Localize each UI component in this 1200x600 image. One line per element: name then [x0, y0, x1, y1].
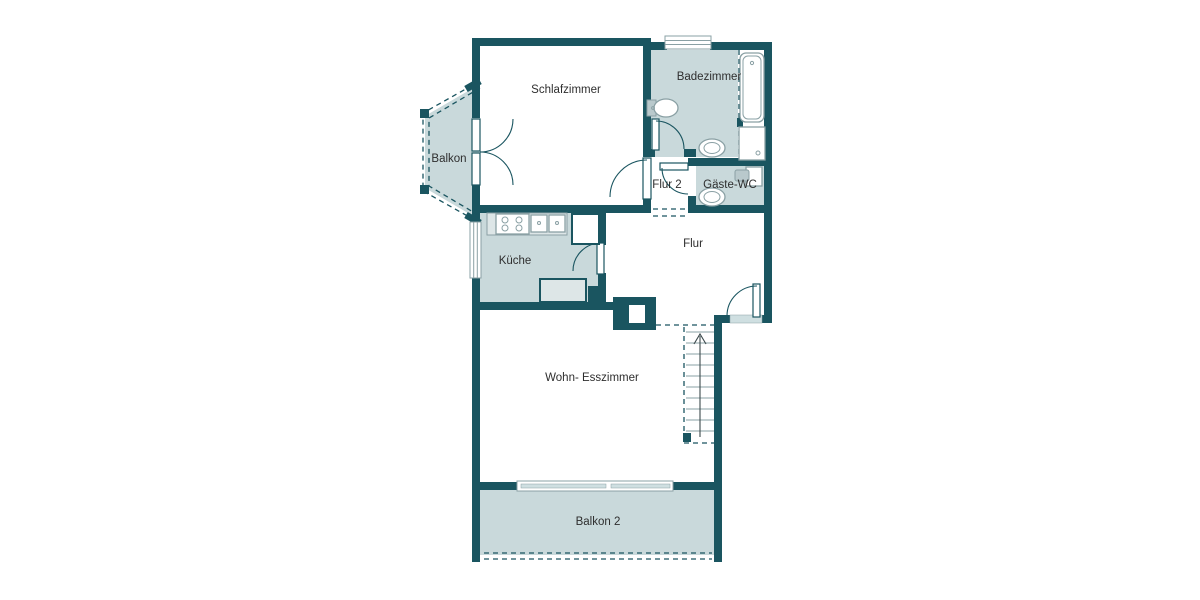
door-swing: [480, 152, 513, 185]
label-balkon: Balkon: [431, 153, 466, 165]
door-leaf: [472, 119, 480, 151]
shower: [739, 127, 765, 160]
wall-kueche-bottom: [472, 302, 613, 310]
floor-plan-drawing: Schlafzimmer Balkon Badezimmer Flur 2 Gä…: [0, 0, 1200, 600]
label-kueche: Küche: [499, 255, 532, 267]
staircase: [656, 325, 714, 443]
stair-newel: [683, 433, 691, 442]
label-balkon2: Balkon 2: [576, 516, 621, 528]
label-gaeste-wc: Gäste-WC: [703, 179, 757, 191]
door-leaf: [660, 163, 688, 170]
label-schlafzimmer: Schlafzimmer: [531, 84, 601, 96]
balkon-corner-bottom: [420, 185, 429, 194]
wall-bad-bottom-right: [684, 149, 696, 157]
door-leaf: [472, 153, 480, 185]
label-flur2: Flur 2: [652, 179, 681, 191]
door-swing: [610, 160, 647, 197]
wall-entrance-right: [762, 315, 772, 323]
chimney-flue: [629, 305, 645, 323]
door-leaf: [753, 284, 760, 317]
wall-left-lower: [472, 310, 480, 562]
schlafzimmer-door: [610, 158, 651, 199]
fridge: [572, 214, 599, 244]
wall-right-lower: [714, 315, 722, 562]
entrance-door: [727, 284, 762, 323]
wall-gwc-bottom: [688, 205, 772, 213]
kitchen-counter-low: [540, 279, 586, 302]
door-leaf: [643, 158, 651, 199]
door-leaf: [652, 119, 659, 150]
wall-mid-horizontal: [472, 205, 651, 213]
balkon-corner-top: [420, 109, 429, 118]
wall-right-upper: [764, 42, 772, 323]
flur2-opening: [653, 209, 686, 216]
door-swing: [480, 119, 513, 152]
badezimmer-window: [665, 36, 711, 49]
kueche-window: [470, 222, 481, 278]
door-leaf: [597, 243, 604, 274]
wall-top-bad-right: [710, 42, 772, 50]
stairs-direction-arrow: [694, 334, 706, 437]
label-wohn-esszimmer: Wohn- Esszimmer: [545, 372, 639, 384]
bathtub: [740, 53, 764, 122]
stove: [496, 214, 529, 234]
bath-sink: [647, 99, 678, 117]
floor-plan-page: Schlafzimmer Balkon Badezimmer Flur 2 Gä…: [0, 0, 1200, 600]
wohnzimmer-balkon-window: [517, 481, 673, 491]
wall-window-right: [673, 482, 722, 490]
wall-window-left: [472, 482, 517, 490]
label-badezimmer: Badezimmer: [677, 71, 742, 83]
wall-kueche-stub: [588, 286, 598, 302]
bath-toilet: [699, 139, 725, 157]
wall-left-upper: [472, 38, 480, 118]
wall-top-schlafzimmer: [472, 38, 651, 46]
label-flur: Flur: [683, 238, 703, 250]
